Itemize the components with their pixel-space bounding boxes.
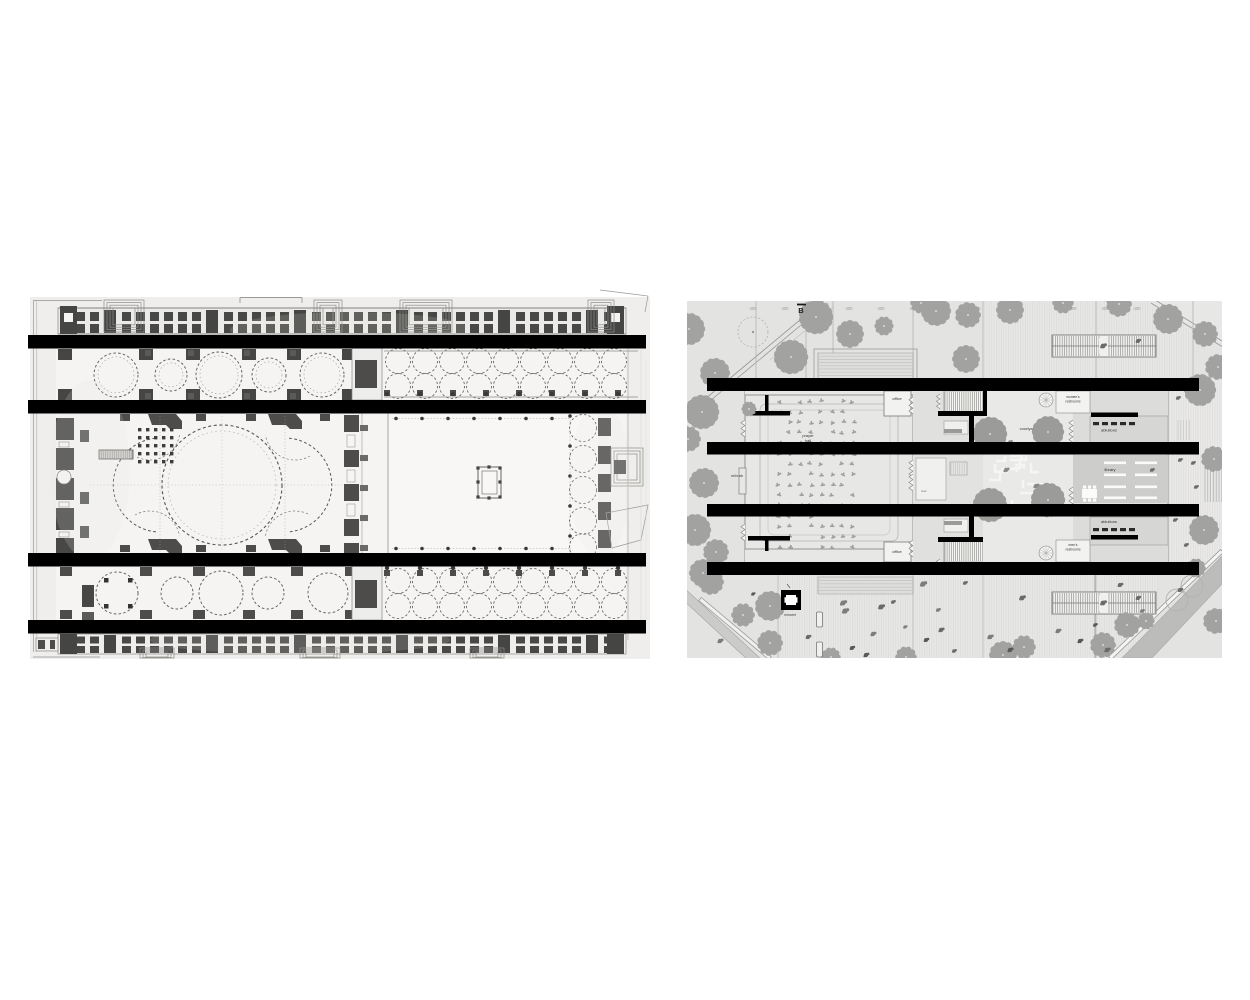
svg-text:restrooms: restrooms bbox=[1065, 400, 1080, 404]
svg-text:ablutions: ablutions bbox=[1101, 428, 1117, 433]
svg-text:minaret: minaret bbox=[784, 613, 796, 617]
svg-text:office: office bbox=[892, 396, 902, 401]
svg-text:ablutions: ablutions bbox=[1101, 519, 1117, 524]
svg-text:library: library bbox=[1105, 467, 1116, 472]
svg-text:office: office bbox=[892, 549, 902, 554]
svg-text:400: 400 bbox=[1134, 306, 1142, 311]
svg-text:400: 400 bbox=[878, 306, 886, 311]
svg-text:400: 400 bbox=[846, 306, 854, 311]
svg-text:stair: stair bbox=[921, 489, 927, 493]
svg-text:men's: men's bbox=[1069, 543, 1078, 547]
svg-text:restrooms: restrooms bbox=[1065, 548, 1080, 552]
svg-text:mihrab: mihrab bbox=[731, 473, 744, 478]
svg-text:women's: women's bbox=[1066, 395, 1080, 399]
svg-text:400: 400 bbox=[750, 306, 758, 311]
svg-text:400: 400 bbox=[782, 306, 790, 311]
svg-text:B: B bbox=[798, 306, 804, 315]
